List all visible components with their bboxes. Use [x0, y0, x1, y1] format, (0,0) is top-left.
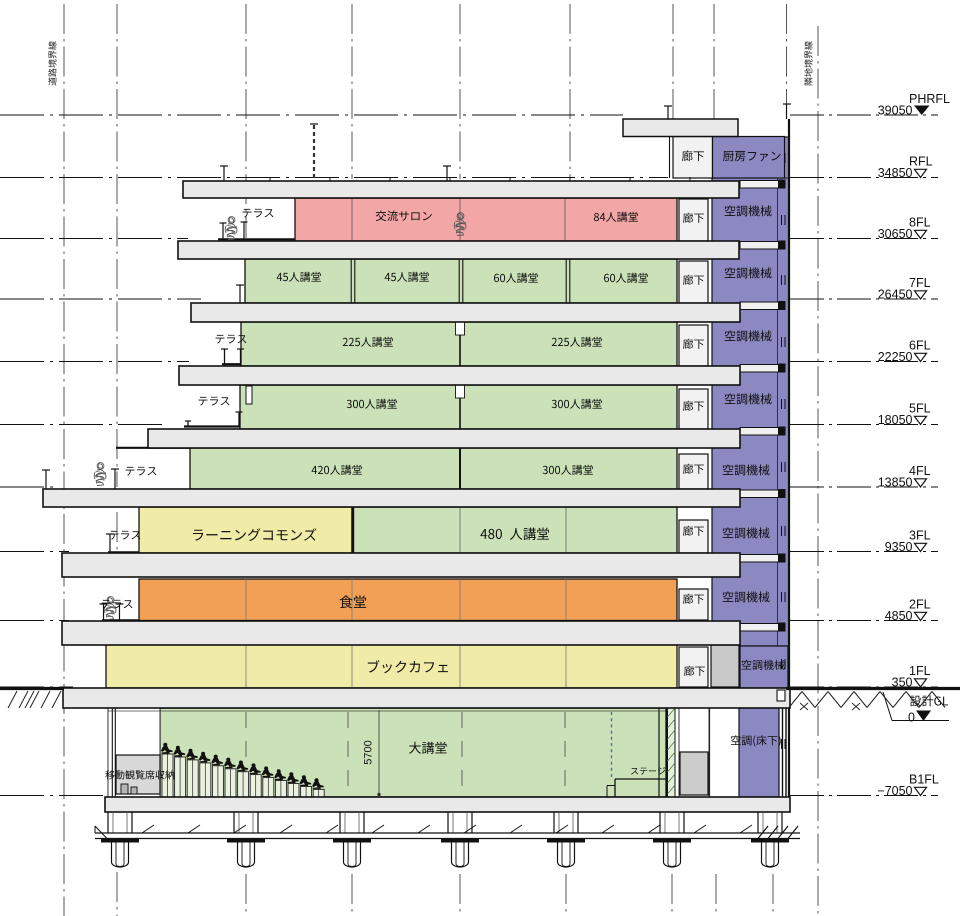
svg-text:34850: 34850	[878, 166, 913, 180]
svg-text:RFL: RFL	[909, 155, 933, 169]
svg-text:22250: 22250	[878, 350, 913, 364]
svg-text:−7050: −7050	[877, 784, 912, 798]
svg-text:30650: 30650	[878, 227, 913, 241]
svg-text:39050: 39050	[878, 104, 913, 118]
svg-text:9350: 9350	[885, 540, 913, 554]
svg-text:5700: 5700	[363, 740, 375, 764]
svg-text:26450: 26450	[878, 288, 913, 302]
svg-text:0: 0	[908, 711, 915, 725]
svg-text:PHRFL: PHRFL	[909, 92, 950, 106]
svg-text:B1FL: B1FL	[909, 773, 939, 787]
svg-text:4850: 4850	[885, 609, 913, 623]
svg-text:13850: 13850	[878, 476, 913, 490]
svg-text:18050: 18050	[878, 413, 913, 427]
